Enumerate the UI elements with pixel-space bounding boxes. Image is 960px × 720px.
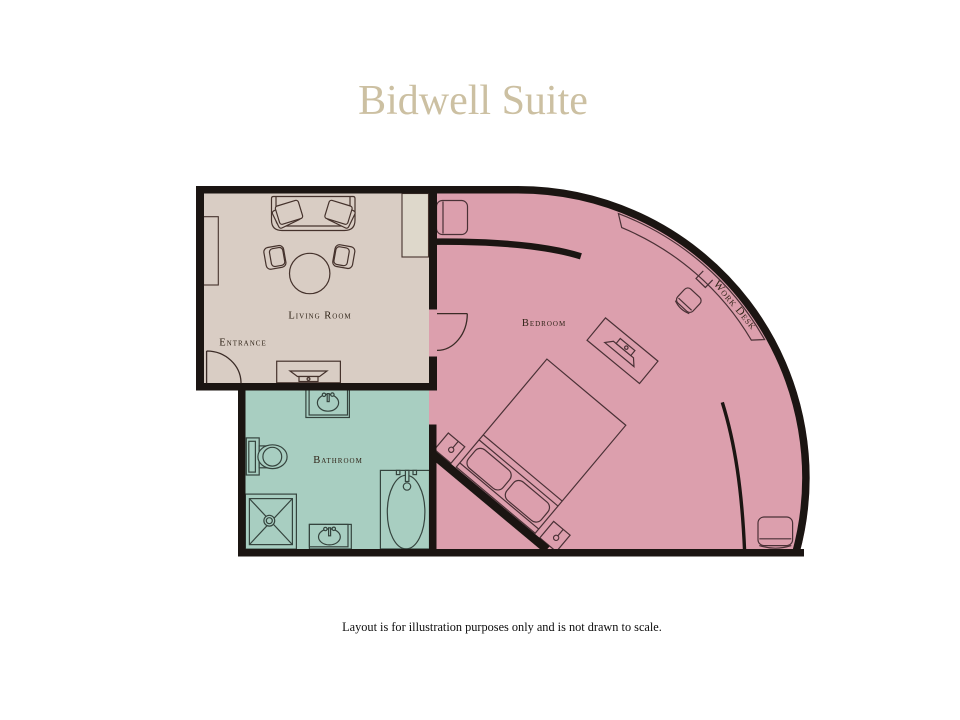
svg-text:Bidwell Suite: Bidwell Suite bbox=[358, 78, 588, 124]
svg-text:Bedroom: Bedroom bbox=[522, 318, 566, 329]
svg-text:Bathroom: Bathroom bbox=[313, 455, 363, 466]
svg-text:Entrance: Entrance bbox=[219, 338, 266, 349]
svg-text:Living Room: Living Room bbox=[288, 311, 351, 322]
svg-text:Layout is for illustration pur: Layout is for illustration purposes only… bbox=[342, 620, 662, 634]
